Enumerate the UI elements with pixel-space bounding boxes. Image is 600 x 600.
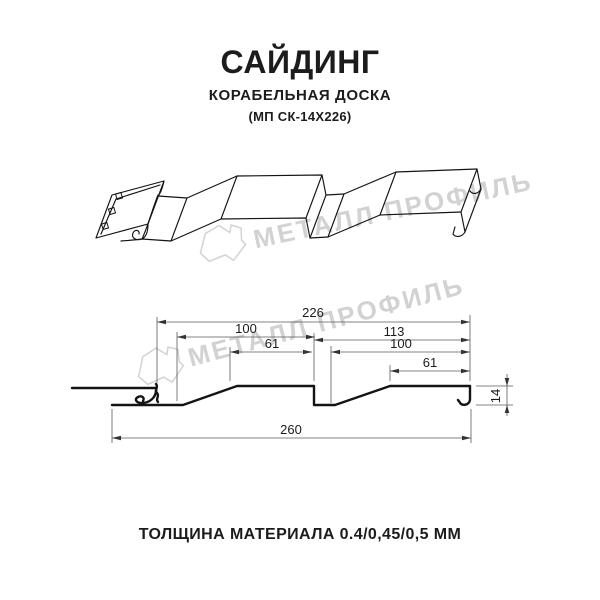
- dim-right-board-width: 100: [390, 336, 412, 351]
- lock-hook: [136, 390, 156, 403]
- dim-overall-width: 226: [302, 305, 324, 320]
- thickness-note: ТОЛЩИНА МАТЕРИАЛА 0.4/0,45/0,5 ММ: [0, 527, 600, 543]
- product-drawing-page: { "header": { "title": "САЙДИНГ", "subti…: [0, 0, 600, 600]
- dim-profile-height: 14: [488, 389, 503, 403]
- watermark-2: МЕТАЛЛ ПРОФИЛЬ: [133, 267, 469, 390]
- technical-drawing: МЕТАЛЛ ПРОФИЛЬ МЕТАЛЛ ПРОФИЛЬ: [0, 0, 600, 600]
- nail-flange: [96, 181, 164, 238]
- dim-total-panel-width: 260: [280, 422, 302, 437]
- dim-right-board-flat: 61: [423, 355, 437, 370]
- dimension-lines: [112, 320, 509, 441]
- dim-left-board-width: 100: [235, 321, 257, 336]
- lock-rib: [142, 195, 158, 239]
- profile-outline: [112, 386, 470, 405]
- dim-left-board-flat: 61: [265, 336, 279, 351]
- cross-section: [72, 384, 470, 405]
- metall-profil-logo-icon: [196, 221, 249, 267]
- metall-profil-logo-icon: [133, 342, 187, 390]
